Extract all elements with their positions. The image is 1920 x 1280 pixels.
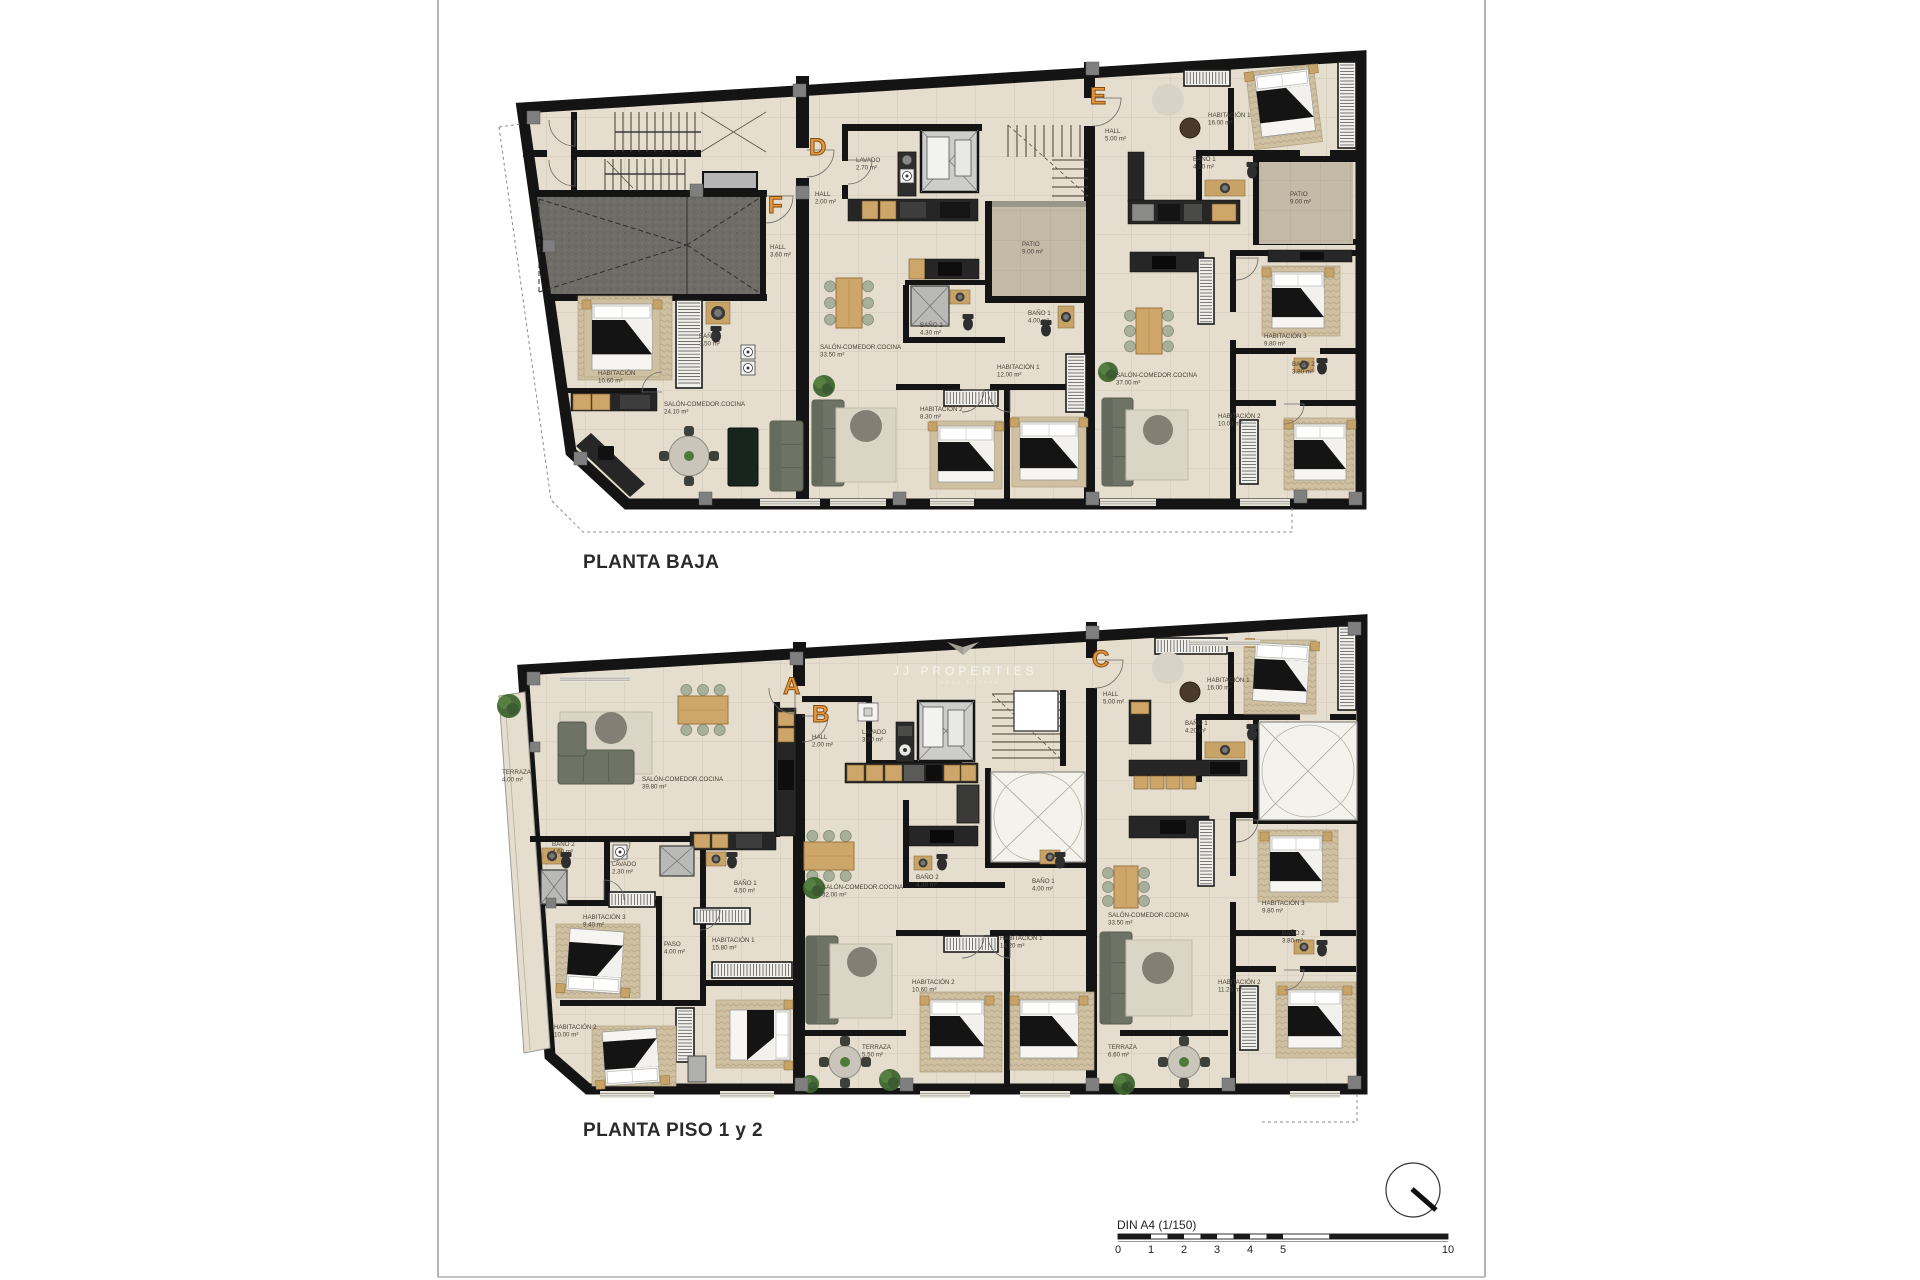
svg-text:LAVADO: LAVADO <box>856 157 880 164</box>
svg-text:2.30 m²: 2.30 m² <box>612 869 633 876</box>
svg-text:3.60 m²: 3.60 m² <box>770 252 791 259</box>
svg-text:0: 0 <box>1115 1244 1121 1256</box>
svg-text:2: 2 <box>1181 1244 1187 1256</box>
svg-text:9.00 m²: 9.00 m² <box>1290 199 1311 206</box>
svg-text:3.80 m²: 3.80 m² <box>1292 369 1313 376</box>
svg-text:4.00 m²: 4.00 m² <box>1032 886 1053 893</box>
svg-text:HABITACIÓN 1: HABITACIÓN 1 <box>712 937 755 944</box>
svg-text:SALÓN-COMEDOR.COCINA: SALÓN-COMEDOR.COCINA <box>642 776 724 783</box>
svg-text:3: 3 <box>1214 1244 1220 1256</box>
svg-text:4.30 m²: 4.30 m² <box>920 330 941 337</box>
svg-text:4.50 m²: 4.50 m² <box>734 888 755 895</box>
svg-text:2.70 m²: 2.70 m² <box>856 165 877 172</box>
svg-text:9.80 m²: 9.80 m² <box>1264 341 1285 348</box>
svg-text:TERRAZA: TERRAZA <box>862 1044 892 1051</box>
svg-text:4.00 m²: 4.00 m² <box>502 777 523 784</box>
svg-text:HABITACIÓN 3: HABITACIÓN 3 <box>1264 333 1307 340</box>
svg-text:HALL: HALL <box>815 191 831 198</box>
svg-text:BAÑO 2: BAÑO 2 <box>920 322 943 329</box>
svg-text:4.30 m²: 4.30 m² <box>916 882 937 889</box>
svg-text:33.50 m²: 33.50 m² <box>820 352 844 359</box>
svg-text:3.50 m²: 3.50 m² <box>699 341 720 348</box>
svg-text:BAÑO 2: BAÑO 2 <box>552 841 575 848</box>
svg-text:11.20 m²: 11.20 m² <box>1218 987 1242 994</box>
svg-text:5: 5 <box>1280 1244 1286 1256</box>
svg-text:F: F <box>768 192 783 219</box>
svg-text:HABITACIÓN 2: HABITACIÓN 2 <box>1218 413 1261 420</box>
svg-text:4.20 m²: 4.20 m² <box>1193 164 1214 171</box>
svg-text:1: 1 <box>1148 1244 1154 1256</box>
svg-text:SALÓN-COMEDOR.COCINA: SALÓN-COMEDOR.COCINA <box>820 344 902 351</box>
svg-text:5.00 m²: 5.00 m² <box>1103 699 1124 706</box>
svg-text:4.00 m²: 4.00 m² <box>664 949 685 956</box>
svg-text:32.00 m²: 32.00 m² <box>822 892 846 899</box>
svg-text:HALL: HALL <box>1103 691 1119 698</box>
svg-text:LAVADO: LAVADO <box>862 729 886 736</box>
svg-text:HABITACIÓN 2: HABITACIÓN 2 <box>554 1024 597 1031</box>
svg-text:HABITACIÓN 2: HABITACIÓN 2 <box>912 979 955 986</box>
svg-text:8.30 m²: 8.30 m² <box>920 414 941 421</box>
svg-text:SALÓN-COMEDOR.COCINA: SALÓN-COMEDOR.COCINA <box>822 884 904 891</box>
svg-text:REAL ESTATE: REAL ESTATE <box>940 680 1000 685</box>
svg-text:B: B <box>812 701 829 728</box>
svg-text:4.60 m²: 4.60 m² <box>552 849 573 856</box>
svg-text:BAÑO 2: BAÑO 2 <box>1282 930 1305 937</box>
svg-text:HABITACIÓN 2: HABITACIÓN 2 <box>1218 979 1261 986</box>
svg-text:HABITACIÓN 3: HABITACIÓN 3 <box>583 914 626 921</box>
svg-text:PATIO: PATIO <box>1022 241 1040 248</box>
svg-text:4: 4 <box>1247 1244 1253 1256</box>
svg-text:37.00 m²: 37.00 m² <box>1116 380 1140 387</box>
svg-text:PASO: PASO <box>664 941 681 948</box>
svg-text:16.00 m²: 16.00 m² <box>1207 685 1231 692</box>
svg-text:D: D <box>809 134 826 161</box>
svg-text:HABITACIÓN 1: HABITACIÓN 1 <box>997 364 1040 371</box>
svg-text:5.50 m²: 5.50 m² <box>862 1052 883 1059</box>
svg-text:9.00 m²: 9.00 m² <box>1022 249 1043 256</box>
svg-text:BAÑO: BAÑO <box>699 333 717 340</box>
svg-text:SALÓN-COMEDOR.COCINA: SALÓN-COMEDOR.COCINA <box>664 401 746 408</box>
svg-text:10.00 m²: 10.00 m² <box>554 1032 578 1039</box>
svg-text:HABITACIÓN: HABITACIÓN <box>598 370 635 377</box>
svg-text:10.60 m²: 10.60 m² <box>912 987 936 994</box>
svg-text:HABITACIÓN 1: HABITACIÓN 1 <box>1000 935 1043 942</box>
svg-text:24.10 m²: 24.10 m² <box>664 409 688 416</box>
svg-text:HABITACIÓN 3: HABITACIÓN 3 <box>1262 900 1305 907</box>
svg-text:3.80 m²: 3.80 m² <box>862 737 883 744</box>
svg-text:BAÑO 1: BAÑO 1 <box>1185 720 1208 727</box>
svg-text:2.00 m²: 2.00 m² <box>812 742 833 749</box>
svg-text:6.60 m²: 6.60 m² <box>1108 1052 1129 1059</box>
svg-text:HABITACIÓN 1: HABITACIÓN 1 <box>1208 112 1251 119</box>
svg-text:10: 10 <box>1442 1244 1454 1256</box>
svg-text:C: C <box>1092 646 1109 673</box>
svg-text:16.00 m²: 16.00 m² <box>1208 120 1232 127</box>
svg-text:HALL: HALL <box>770 244 786 251</box>
svg-text:33.50 m²: 33.50 m² <box>1108 920 1132 927</box>
svg-text:4.00 m²: 4.00 m² <box>1028 318 1049 325</box>
svg-text:9.40 m²: 9.40 m² <box>583 922 604 929</box>
svg-text:10.60 m²: 10.60 m² <box>598 378 622 385</box>
svg-text:14.20 m²: 14.20 m² <box>1000 943 1024 950</box>
svg-text:HABITACIÓN 2: HABITACIÓN 2 <box>920 406 963 413</box>
svg-text:HALL: HALL <box>1105 128 1121 135</box>
svg-text:SALÓN-COMEDOR.COCINA: SALÓN-COMEDOR.COCINA <box>1108 912 1190 919</box>
svg-text:15.80 m²: 15.80 m² <box>712 945 736 952</box>
svg-text:BAÑO 1: BAÑO 1 <box>1028 310 1051 317</box>
svg-text:DIN A4 (1/150): DIN A4 (1/150) <box>1117 1218 1196 1232</box>
svg-text:HABITACIÓN 1: HABITACIÓN 1 <box>1207 677 1250 684</box>
svg-text:TERRAZA: TERRAZA <box>1108 1044 1138 1051</box>
svg-text:9.80 m²: 9.80 m² <box>1262 908 1283 915</box>
svg-text:PLANTA BAJA: PLANTA BAJA <box>583 552 719 573</box>
svg-text:E: E <box>1090 83 1106 110</box>
svg-text:5.00 m²: 5.00 m² <box>1105 136 1126 143</box>
svg-text:BAÑO 1: BAÑO 1 <box>1032 878 1055 885</box>
svg-text:BAÑO 2: BAÑO 2 <box>916 874 939 881</box>
svg-text:SALÓN-COMEDOR.COCINA: SALÓN-COMEDOR.COCINA <box>1116 372 1198 379</box>
svg-text:A: A <box>783 673 800 700</box>
svg-text:4.20 m²: 4.20 m² <box>1185 728 1206 735</box>
svg-text:12.00 m²: 12.00 m² <box>997 372 1021 379</box>
svg-text:BAÑO 1: BAÑO 1 <box>734 880 757 887</box>
svg-text:39.80 m²: 39.80 m² <box>642 784 666 791</box>
svg-text:BAÑO 1: BAÑO 1 <box>1193 156 1216 163</box>
svg-text:TERRAZA: TERRAZA <box>502 769 532 776</box>
svg-text:LAVADO: LAVADO <box>612 861 636 868</box>
svg-text:3.80 m²: 3.80 m² <box>1282 938 1303 945</box>
svg-text:PLANTA PISO 1 y 2: PLANTA PISO 1 y 2 <box>583 1120 763 1141</box>
svg-text:PATIO: PATIO <box>1290 191 1308 198</box>
svg-text:10.00 m²: 10.00 m² <box>1218 421 1242 428</box>
svg-text:2.00 m²: 2.00 m² <box>815 199 836 206</box>
svg-text:BAÑO 2: BAÑO 2 <box>1292 361 1315 368</box>
svg-text:JJ PROPERTIES: JJ PROPERTIES <box>893 664 1037 678</box>
